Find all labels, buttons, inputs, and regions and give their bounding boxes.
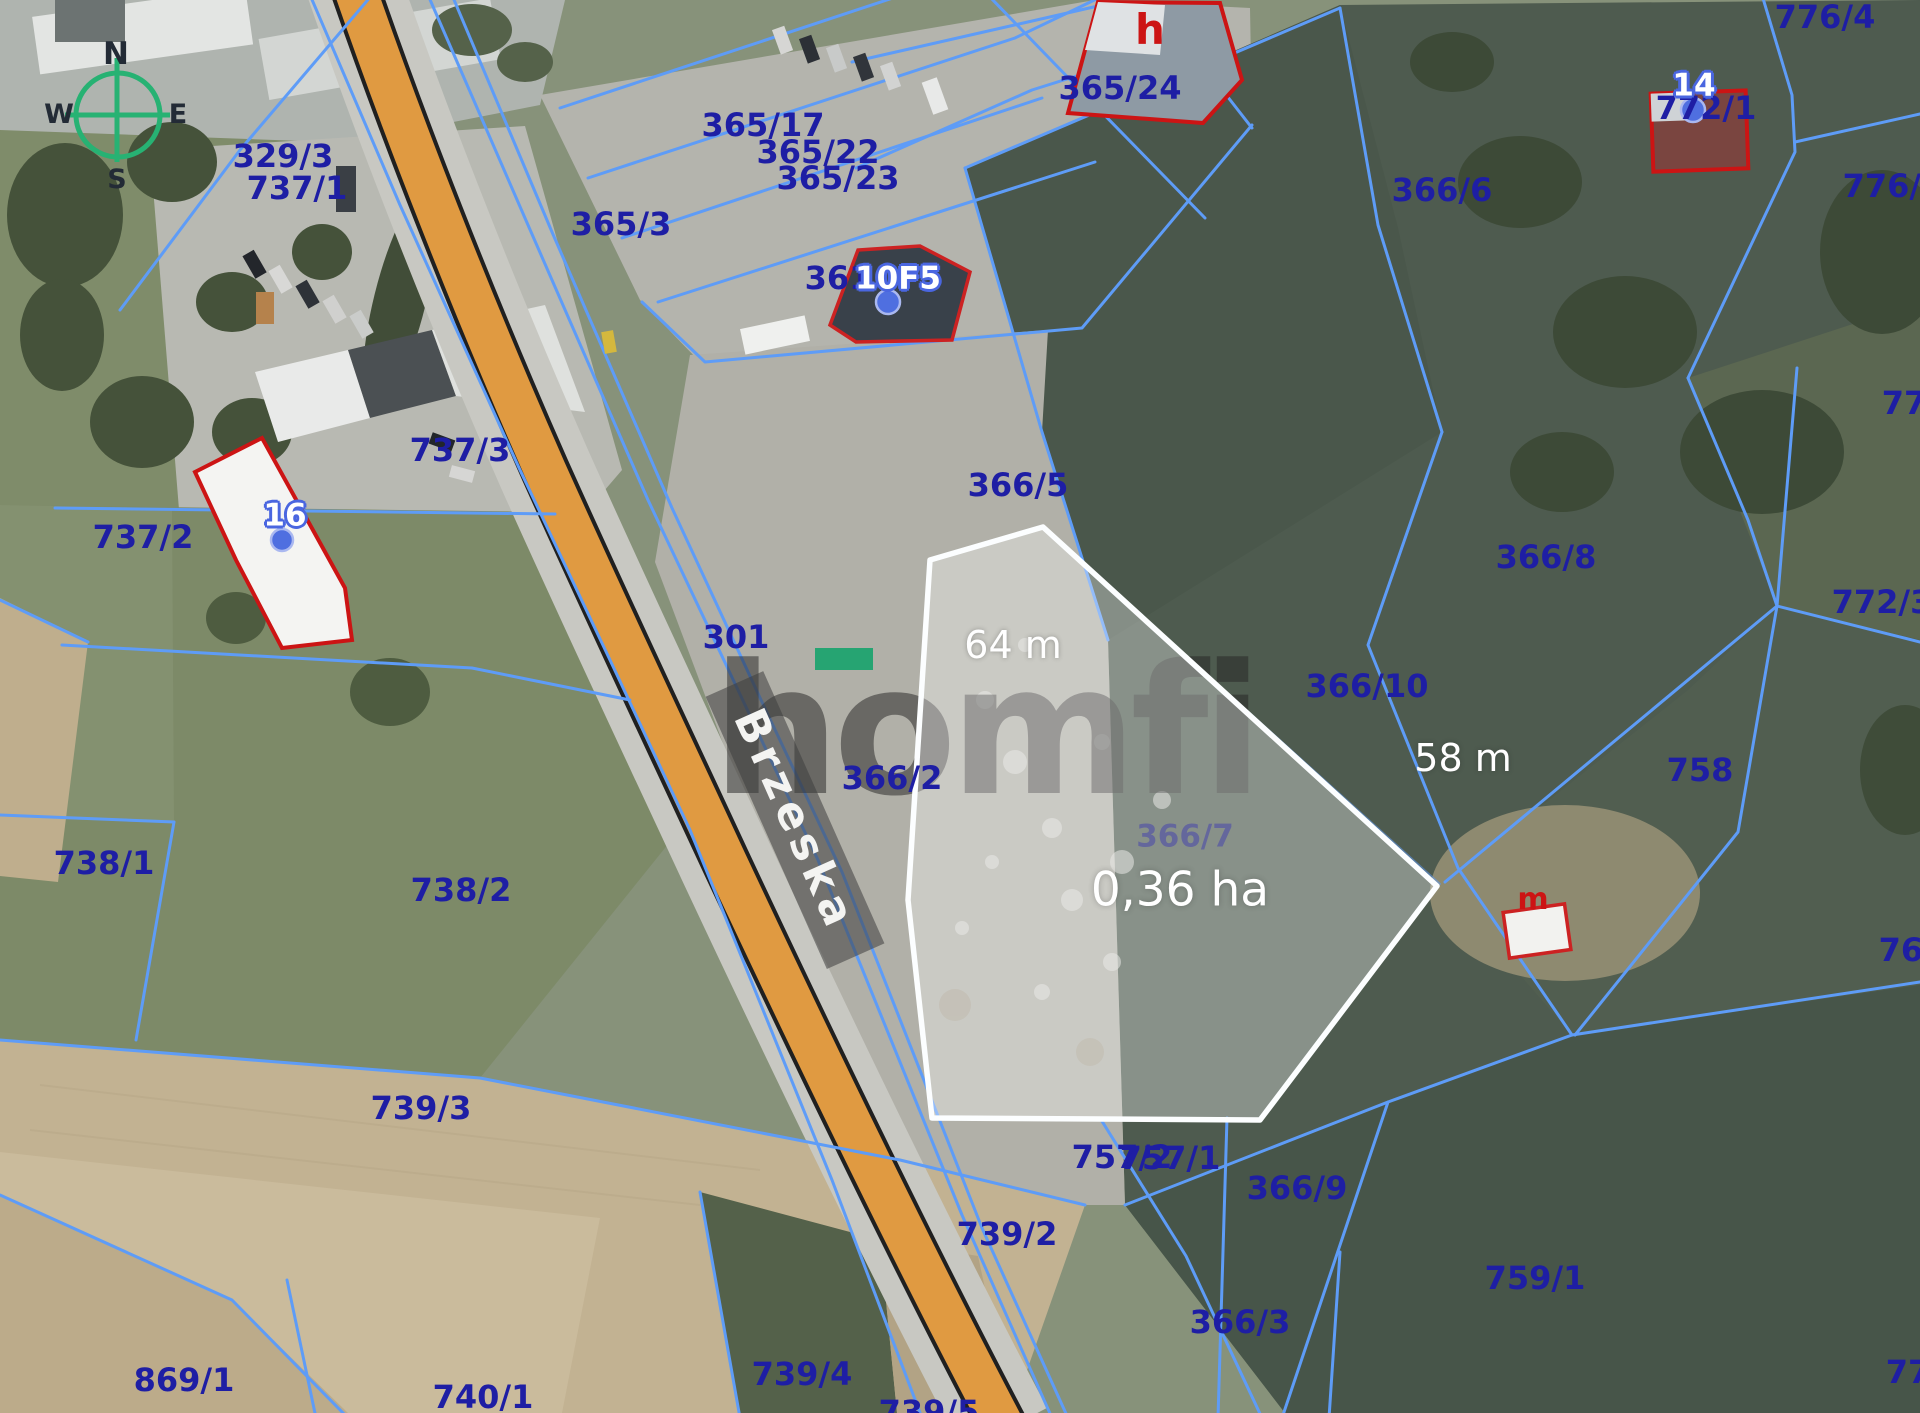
compass-east-label: E	[169, 99, 187, 130]
parcel-label-77-right: 77	[1882, 387, 1920, 419]
parcel-label-77-bottom: 77	[1886, 1356, 1920, 1388]
parcel-label-738-1: 738/1	[54, 847, 155, 879]
compass-west-label: W	[44, 99, 74, 130]
parcel-label-366-7: 366/7	[1136, 822, 1234, 853]
parcel-label-366-10: 366/10	[1305, 670, 1428, 702]
parcel-label-366-5: 366/5	[968, 469, 1069, 501]
parcel-label-366-2: 366/2	[842, 762, 943, 794]
parcel-label-365-3: 365/3	[571, 208, 672, 240]
parcel-label-365-24: 365/24	[1058, 72, 1181, 104]
parcel-label-760: 760	[1879, 934, 1920, 966]
area-label: 0,36 ha	[1091, 867, 1269, 914]
parcel-label-737-2: 737/2	[93, 521, 194, 553]
parcel-label-739-2: 739/2	[957, 1218, 1058, 1250]
parcel-label-739-4: 739/4	[752, 1358, 853, 1390]
parcel-label-757-1: 757/1	[1120, 1142, 1221, 1174]
map-viewport[interactable]: homfi N S W E Brzeska 329/3 737/1 365/3 …	[0, 0, 1920, 1413]
compass-rose: N S W E	[15, 12, 195, 202]
parcel-label-739-3: 739/3	[371, 1092, 472, 1124]
building-letter-h: h	[1135, 9, 1165, 51]
parcel-label-739-5: 739/5	[879, 1396, 980, 1413]
parcel-label-301: 301	[703, 621, 770, 653]
compass-south-label: S	[107, 164, 126, 195]
compass-north-label: N	[103, 36, 129, 72]
parcel-label-740-1: 740/1	[433, 1381, 534, 1413]
dimension-label-top: 64 m	[964, 626, 1061, 664]
parcel-label-366-3: 366/3	[1190, 1306, 1291, 1338]
parcel-label-737-3: 737/3	[410, 434, 511, 466]
parcel-label-758: 758	[1667, 754, 1734, 786]
building-letter-m: m	[1517, 885, 1548, 915]
highlight-overlay	[0, 0, 1920, 1413]
parcel-label-365-23: 365/23	[776, 162, 899, 194]
parcel-label-329-3: 329/3	[233, 140, 334, 172]
parcel-label-366-8: 366/8	[1496, 541, 1597, 573]
address-label-16[interactable]: 16	[263, 501, 306, 532]
parcel-label-366-6: 366/6	[1392, 174, 1493, 206]
parcel-label-776-4: 776/4	[1775, 1, 1876, 33]
parcel-label-737-1: 737/1	[247, 172, 348, 204]
address-label-10f5[interactable]: 10F5	[855, 264, 941, 295]
parcel-label-772-3: 772/3	[1832, 586, 1920, 618]
parcel-label-776-5: 776/5	[1843, 170, 1920, 202]
dimension-label-right: 58 m	[1414, 739, 1511, 777]
address-label-14[interactable]: 14	[1672, 71, 1715, 102]
parcel-label-759-1: 759/1	[1485, 1262, 1586, 1294]
parcel-label-738-2: 738/2	[411, 874, 512, 906]
parcel-label-366-9: 366/9	[1247, 1172, 1348, 1204]
parcel-label-869-1: 869/1	[134, 1364, 235, 1396]
